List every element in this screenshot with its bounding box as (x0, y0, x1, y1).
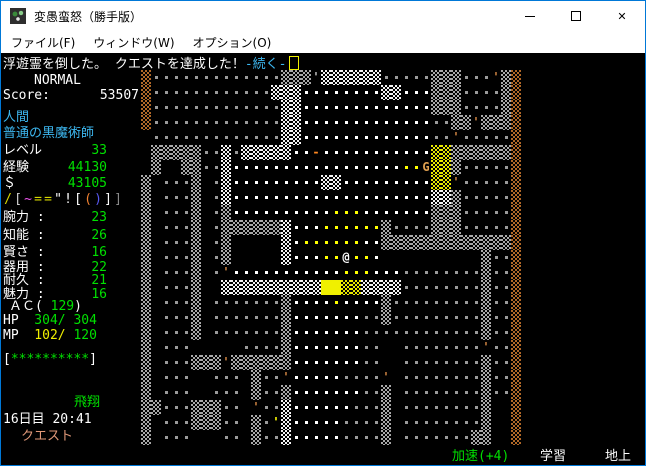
empty-tile (531, 355, 541, 370)
empty-tile (631, 130, 641, 145)
empty-tile (601, 190, 611, 205)
floor-dark (411, 355, 421, 370)
maximize-button[interactable] (553, 1, 599, 31)
empty-tile (171, 160, 181, 175)
empty-tile (581, 130, 591, 145)
score-value: 53507 (100, 88, 139, 103)
equipment-glyph: ! (63, 192, 73, 207)
floor-dark (221, 130, 231, 145)
floor-dark (161, 115, 171, 130)
empty-tile (261, 250, 271, 265)
empty-tile (591, 310, 601, 325)
floor-dark (481, 220, 491, 235)
empty-tile (621, 385, 631, 400)
floor-dark (261, 100, 271, 115)
floor-lit (271, 190, 281, 205)
granite-wall (481, 415, 491, 430)
empty-tile (561, 100, 571, 115)
empty-tile (531, 415, 541, 430)
floor-dark (461, 265, 471, 280)
granite-wall (471, 235, 481, 250)
empty-tile (591, 295, 601, 310)
window-controls: ✕ (507, 1, 645, 31)
floor-dark (231, 400, 241, 415)
floor-dark (171, 370, 181, 385)
granite-wall (451, 205, 461, 220)
floor-lit (361, 100, 371, 115)
empty-tile (241, 430, 251, 445)
floor-lit (301, 400, 311, 415)
quartz-vein-wall (391, 280, 401, 295)
empty-tile (551, 100, 561, 115)
granite-wall (441, 70, 451, 85)
floor-dark (151, 70, 161, 85)
floor-dark (491, 205, 501, 220)
empty-tile (461, 250, 471, 265)
stat-row-wis: 賢さ : 16 (3, 245, 107, 260)
floor-dark (461, 400, 471, 415)
floor-dark (361, 385, 371, 400)
floor-dark (471, 160, 481, 175)
empty-tile (571, 280, 581, 295)
floor-dark (211, 190, 221, 205)
empty-tile (561, 265, 571, 280)
granite-wall (481, 295, 491, 310)
empty-tile (581, 160, 591, 175)
floor-dark (271, 385, 281, 400)
empty-tile (571, 190, 581, 205)
floor-lit (281, 175, 291, 190)
equipment-row: /[~=="![()]] (3, 192, 123, 207)
floor-dark (191, 100, 201, 115)
floor-dark (151, 115, 161, 130)
granite-wall (191, 415, 201, 430)
floor-lit (341, 85, 351, 100)
empty-tile (571, 325, 581, 340)
granite-wall (141, 250, 151, 265)
empty-tile (571, 115, 581, 130)
minimize-button[interactable] (507, 1, 553, 31)
empty-tile (521, 265, 531, 280)
granite-wall (151, 160, 161, 175)
floor-lit (411, 190, 421, 205)
granite-wall (211, 400, 221, 415)
mp-current: 102/ (19, 328, 66, 343)
empty-tile (531, 130, 541, 145)
floor-lit (311, 115, 321, 130)
floor-lit (351, 130, 361, 145)
floor-dark (171, 250, 181, 265)
floor-dark (181, 235, 191, 250)
floor-lit (381, 265, 391, 280)
empty-tile (381, 340, 391, 355)
floor-dark (231, 85, 241, 100)
floor-dark (501, 385, 511, 400)
floor-dark (451, 265, 461, 280)
granite-wall (431, 100, 441, 115)
quartz-vein-wall (221, 145, 231, 160)
granite-wall (241, 220, 251, 235)
floor-lit (371, 130, 381, 145)
floor-lit (251, 160, 261, 175)
granite-wall (381, 385, 391, 400)
empty-tile (591, 235, 601, 250)
flight-status-label: 飛翔 (74, 395, 100, 410)
floor-dark (191, 115, 201, 130)
empty-tile (561, 190, 571, 205)
floor-dark (271, 295, 281, 310)
quartz-vein-wall (391, 85, 401, 100)
empty-tile (151, 175, 161, 190)
granite-wall (491, 115, 501, 130)
floor-dark (221, 385, 231, 400)
floor-dark (171, 415, 181, 430)
floor-lit (421, 85, 431, 100)
floor-glow (321, 220, 331, 235)
floor-lit (321, 295, 331, 310)
floor-dark (501, 295, 511, 310)
empty-tile (621, 340, 631, 355)
mp-label: MP (3, 328, 19, 343)
equipment-glyph: = (33, 192, 43, 207)
empty-tile (611, 265, 621, 280)
equipment-glyph: [ (13, 192, 23, 207)
app-window: 変愚蛮怒（勝手版） ✕ ファイル(F) ウィンドウ(W) オプション(O) 浮遊… (0, 0, 646, 466)
empty-tile (551, 130, 561, 145)
floor-dark (421, 340, 431, 355)
floor-dark (161, 325, 171, 340)
floor-lit (231, 175, 241, 190)
rubble-wall (141, 115, 151, 130)
granite-wall (451, 145, 461, 160)
granite-wall (151, 145, 161, 160)
empty-tile (611, 400, 621, 415)
empty-tile (151, 385, 161, 400)
granite-wall (431, 70, 441, 85)
empty-tile (391, 370, 401, 385)
floor-dark (431, 340, 441, 355)
floor-dark (251, 85, 261, 100)
floor-lit (411, 175, 421, 190)
granite-wall (201, 400, 211, 415)
empty-tile (151, 205, 161, 220)
status-bar-gauge: [**********] (3, 352, 97, 367)
empty-tile (591, 145, 601, 160)
floor-lit (291, 400, 301, 415)
granite-wall (251, 385, 261, 400)
floor-lit (351, 145, 361, 160)
granite-wall (281, 385, 291, 400)
granite-wall (191, 310, 201, 325)
floor-lit (341, 190, 351, 205)
floor-lit (311, 250, 321, 265)
empty-tile (571, 355, 581, 370)
menu-item-window[interactable]: ウィンドウ(W) (93, 34, 174, 51)
granite-wall (501, 70, 511, 85)
floor-dark (451, 310, 461, 325)
empty-tile (551, 325, 561, 340)
floor-dark (171, 385, 181, 400)
floor-lit (421, 190, 431, 205)
menu-item-option[interactable]: オプション(O) (193, 34, 272, 51)
floor-lit (261, 175, 271, 190)
floor-lit (411, 85, 421, 100)
gold-vein-wall (441, 175, 451, 190)
gold-row: ＄ 43105 (3, 176, 107, 191)
text-cursor (289, 56, 299, 70)
floor-dark (461, 325, 471, 340)
floor-dark (261, 400, 271, 415)
floor-glow (351, 250, 361, 265)
empty-tile (581, 370, 591, 385)
empty-tile (611, 355, 621, 370)
floor-lit (311, 340, 321, 355)
empty-tile (151, 370, 161, 385)
empty-tile (571, 310, 581, 325)
empty-tile (531, 70, 541, 85)
floor-dark (411, 310, 421, 325)
empty-tile (601, 385, 611, 400)
floor-dark (431, 385, 441, 400)
floor-lit (321, 160, 331, 175)
floor-dark (471, 70, 481, 85)
empty-tile (591, 340, 601, 355)
empty-tile (621, 115, 631, 130)
empty-tile (621, 280, 631, 295)
floor-dark (401, 220, 411, 235)
floor-dark (181, 415, 191, 430)
floor-dark (181, 385, 191, 400)
floor-dark (501, 340, 511, 355)
floor-dark (411, 70, 421, 85)
empty-tile (621, 295, 631, 310)
granite-wall (471, 430, 481, 445)
quartz-vein-wall (281, 415, 291, 430)
quartz-vein-wall (431, 190, 441, 205)
empty-tile (631, 145, 641, 160)
granite-wall (141, 310, 151, 325)
floor-glow (311, 235, 321, 250)
granite-wall (141, 235, 151, 250)
floor-dark (461, 85, 471, 100)
floor-lit (331, 265, 341, 280)
floor-lit (291, 205, 301, 220)
granite-wall (481, 235, 491, 250)
empty-tile (201, 265, 211, 280)
empty-tile (151, 430, 161, 445)
floor-dark (471, 415, 481, 430)
empty-tile (571, 295, 581, 310)
empty-tile (631, 100, 641, 115)
floor-glow (331, 250, 341, 265)
granite-wall (141, 175, 151, 190)
floor-lit (301, 325, 311, 340)
empty-tile (521, 145, 531, 160)
menu-item-file[interactable]: ファイル(F) (11, 34, 75, 51)
equipment-glyph: ~ (23, 192, 33, 207)
floor-dark (161, 85, 171, 100)
floor-lit (331, 100, 341, 115)
race-label: 人間 (3, 110, 29, 125)
empty-tile (531, 115, 541, 130)
floor-lit (401, 100, 411, 115)
floor-lit (321, 415, 331, 430)
empty-tile (631, 340, 641, 355)
granite-wall (411, 235, 421, 250)
gold-vein-wall (431, 175, 441, 190)
empty-tile (611, 325, 621, 340)
empty-tile (471, 250, 481, 265)
floor-dark (501, 325, 511, 340)
floor-dark (261, 385, 271, 400)
empty-tile (631, 250, 641, 265)
floor-dark (421, 265, 431, 280)
granite-wall (481, 250, 491, 265)
granite-wall (281, 340, 291, 355)
floor-dark (451, 295, 461, 310)
empty-tile (561, 130, 571, 145)
floor-dark (161, 295, 171, 310)
empty-tile (521, 85, 531, 100)
empty-tile (601, 250, 611, 265)
empty-tile (451, 250, 461, 265)
floor-dark (501, 220, 511, 235)
floor-lit (251, 265, 261, 280)
floor-lit (301, 175, 311, 190)
floor-dark (501, 370, 511, 385)
rubble-wall (511, 370, 521, 385)
floor-lit (281, 190, 291, 205)
floor-dark (421, 430, 431, 445)
empty-tile (561, 370, 571, 385)
empty-tile (621, 325, 631, 340)
floor-dark (241, 70, 251, 85)
empty-tile (591, 415, 601, 430)
floor-lit (261, 190, 271, 205)
floor-dark (461, 340, 471, 355)
floor-glow (321, 235, 331, 250)
floor-dark (221, 70, 231, 85)
floor-lit (291, 190, 301, 205)
empty-tile (581, 295, 591, 310)
floor-dark (501, 160, 511, 175)
floor-lit (361, 205, 371, 220)
floor-dark (371, 340, 381, 355)
floor-dark (481, 130, 491, 145)
floor-dark (211, 130, 221, 145)
floor-dark (451, 340, 461, 355)
empty-tile (571, 175, 581, 190)
floor-dark (471, 175, 481, 190)
floor-dark (371, 400, 381, 415)
empty-tile (521, 190, 531, 205)
floor-dark (191, 130, 201, 145)
floor-dark (401, 295, 411, 310)
granite-wall (441, 100, 451, 115)
floor-dark (221, 370, 231, 385)
floor-lit (361, 295, 371, 310)
floor-dark (171, 235, 181, 250)
floor-dark (461, 100, 471, 115)
floor-dark (461, 70, 471, 85)
granite-wall (141, 295, 151, 310)
granite-wall (211, 355, 221, 370)
empty-tile (571, 160, 581, 175)
empty-tile (211, 280, 221, 295)
granite-wall (141, 430, 151, 445)
floor-dark (431, 430, 441, 445)
granite-wall (201, 355, 211, 370)
empty-tile (541, 175, 551, 190)
date-time-label: 16日目 20:41 (3, 412, 92, 427)
rubble-wall (511, 235, 521, 250)
empty-tile (621, 430, 631, 445)
empty-tile (621, 370, 631, 385)
floor-lit (291, 220, 301, 235)
floor-dark (221, 295, 231, 310)
floor-lit (361, 115, 371, 130)
floor-lit (311, 220, 321, 235)
item-yellow: ' (271, 415, 281, 430)
empty-tile (591, 100, 601, 115)
floor-lit (271, 160, 281, 175)
floor-dark (431, 325, 441, 340)
empty-tile (561, 145, 571, 160)
floor-dark (401, 310, 411, 325)
empty-tile (631, 325, 641, 340)
floor-lit (341, 295, 351, 310)
floor-lit (341, 385, 351, 400)
mp-max: 120 (66, 328, 97, 343)
empty-tile (551, 145, 561, 160)
maximize-icon (571, 11, 581, 21)
close-button[interactable]: ✕ (599, 1, 645, 31)
floor-lit (391, 130, 401, 145)
floor-lit (261, 205, 271, 220)
floor-lit (341, 160, 351, 175)
floor-dark (161, 265, 171, 280)
floor-dark (181, 70, 191, 85)
rubble-wall (511, 160, 521, 175)
floor-lit (301, 160, 311, 175)
floor-dark (361, 430, 371, 445)
floor-lit (381, 100, 391, 115)
empty-tile (521, 310, 531, 325)
empty-tile (591, 175, 601, 190)
granite-wall (181, 145, 191, 160)
quartz-vein-wall (381, 85, 391, 100)
empty-tile (541, 220, 551, 235)
floor-lit (331, 400, 341, 415)
floor-lit (421, 130, 431, 145)
empty-tile (601, 430, 611, 445)
floor-dark (161, 280, 171, 295)
empty-tile (601, 70, 611, 85)
floor-lit (341, 340, 351, 355)
granite-wall (191, 190, 201, 205)
granite-wall (431, 235, 441, 250)
floor-dark (211, 85, 221, 100)
granite-wall (461, 235, 471, 250)
floor-lit (321, 85, 331, 100)
granite-wall (191, 265, 201, 280)
empty-tile (601, 160, 611, 175)
granite-wall (221, 235, 231, 250)
stat-row-str: 腕力 : 23 (3, 210, 107, 225)
learning-indicator: 学習 (540, 449, 566, 464)
empty-tile (551, 205, 561, 220)
floor-dark (171, 175, 181, 190)
